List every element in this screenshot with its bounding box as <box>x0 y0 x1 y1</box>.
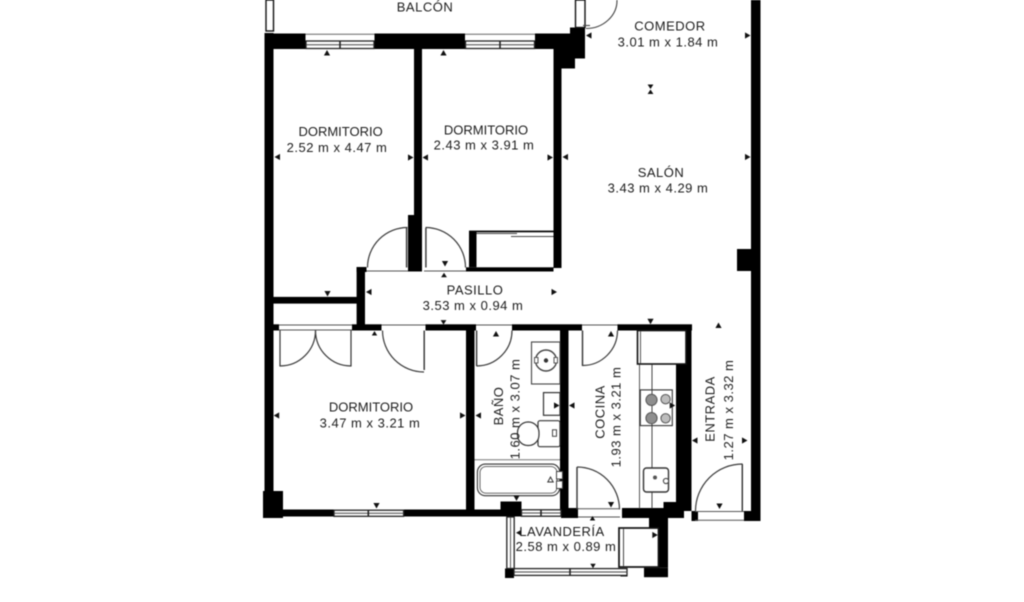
svg-text:DORMITORIO: DORMITORIO <box>329 400 413 415</box>
svg-text:DORMITORIO: DORMITORIO <box>298 124 382 139</box>
svg-text:COMEDOR: COMEDOR <box>634 19 705 34</box>
svg-text:1.93 m x 3.21 m: 1.93 m x 3.21 m <box>609 367 624 468</box>
svg-text:3.47 m x 3.21 m: 3.47 m x 3.21 m <box>320 416 421 431</box>
svg-text:ENTRADA: ENTRADA <box>703 376 718 442</box>
svg-text:BALCÓN: BALCÓN <box>397 0 453 15</box>
svg-text:COCINA: COCINA <box>593 385 608 439</box>
svg-text:PASILLO: PASILLO <box>447 283 504 298</box>
svg-text:3.01 m x 1.84 m: 3.01 m x 1.84 m <box>618 35 719 50</box>
svg-text:2.52 m x 4.47 m: 2.52 m x 4.47 m <box>287 140 388 155</box>
svg-text:3.53 m x 0.94 m: 3.53 m x 0.94 m <box>423 298 524 313</box>
svg-text:2.43 m x 3.91 m: 2.43 m x 3.91 m <box>434 137 535 152</box>
svg-text:LAVANDERÍA: LAVANDERÍA <box>519 524 604 539</box>
svg-text:SALÓN: SALÓN <box>638 165 685 180</box>
svg-text:3.43 m x 4.29 m: 3.43 m x 4.29 m <box>608 181 709 196</box>
svg-text:DORMITORIO: DORMITORIO <box>444 123 528 138</box>
svg-text:1.27 m x 3.32 m: 1.27 m x 3.32 m <box>721 360 736 461</box>
svg-text:2.58 m x 0.89 m: 2.58 m x 0.89 m <box>516 539 617 554</box>
svg-text:BAÑO: BAÑO <box>491 387 506 426</box>
svg-text:1.60 m x 3.07 m: 1.60 m x 3.07 m <box>508 359 523 460</box>
